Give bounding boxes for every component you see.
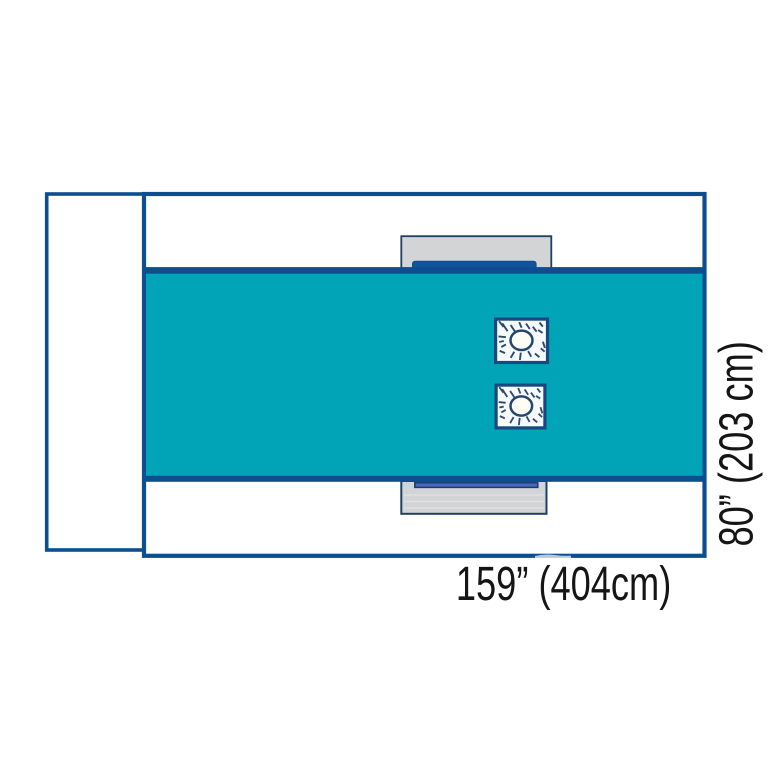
svg-text:159” (404cm): 159” (404cm)	[456, 558, 671, 611]
svg-text:80” (203 cm): 80” (203 cm)	[711, 341, 764, 546]
